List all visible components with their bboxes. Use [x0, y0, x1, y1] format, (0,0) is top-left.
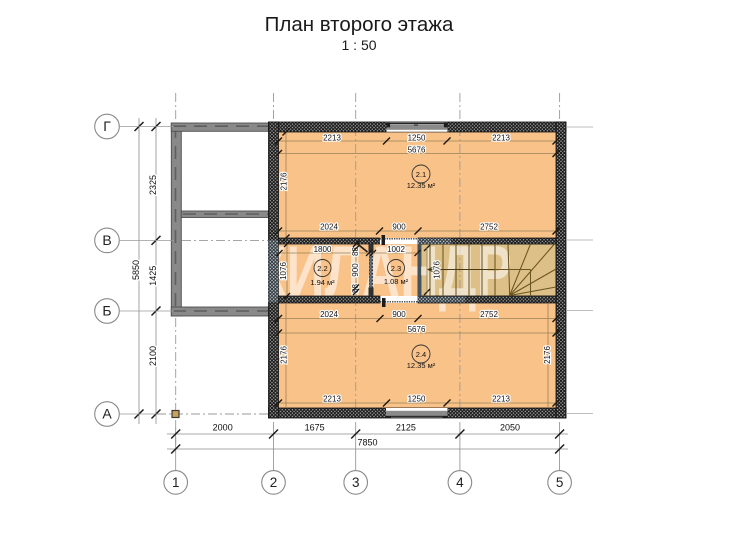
svg-text:5676: 5676	[408, 146, 426, 155]
svg-text:900: 900	[351, 263, 360, 277]
svg-text:4: 4	[456, 475, 464, 490]
svg-text:1002: 1002	[387, 245, 405, 254]
svg-text:88: 88	[351, 247, 360, 256]
svg-text:Г: Г	[103, 118, 111, 134]
svg-text:1425: 1425	[148, 266, 158, 286]
svg-text:2024: 2024	[320, 223, 338, 232]
svg-text:2752: 2752	[480, 310, 498, 319]
svg-text:2176: 2176	[280, 172, 289, 190]
svg-text:900: 900	[392, 310, 406, 319]
svg-text:1.08 м²: 1.08 м²	[384, 277, 409, 286]
svg-text:2.1: 2.1	[416, 170, 426, 179]
svg-text:2752: 2752	[480, 223, 498, 232]
svg-text:12.35 м²: 12.35 м²	[407, 181, 436, 190]
svg-text:2.4: 2.4	[416, 350, 426, 359]
svg-text:5: 5	[556, 475, 564, 490]
svg-text:2213: 2213	[323, 395, 341, 404]
svg-text:1800: 1800	[314, 245, 332, 254]
svg-text:1076: 1076	[279, 262, 288, 280]
svg-text:2100: 2100	[148, 346, 158, 366]
svg-text:А: А	[102, 406, 112, 422]
svg-text:Б: Б	[102, 303, 111, 319]
svg-text:2213: 2213	[492, 134, 510, 143]
svg-text:1.94 м²: 1.94 м²	[310, 278, 335, 287]
svg-text:2213: 2213	[492, 395, 510, 404]
svg-text:2.2: 2.2	[317, 264, 327, 273]
svg-text:2050: 2050	[500, 423, 520, 433]
svg-text:12.35 м²: 12.35 м²	[407, 361, 436, 370]
svg-text:2000: 2000	[213, 423, 233, 433]
svg-text:2.3: 2.3	[391, 264, 401, 273]
svg-text:2213: 2213	[323, 134, 341, 143]
svg-text:В: В	[102, 232, 111, 248]
svg-text:1: 1	[172, 475, 180, 490]
svg-text:1675: 1675	[305, 423, 325, 433]
svg-text:7850: 7850	[357, 438, 377, 448]
svg-text:5850: 5850	[131, 260, 141, 280]
svg-text:1 : 50: 1 : 50	[341, 37, 376, 53]
svg-text:2: 2	[270, 475, 278, 490]
svg-text:2325: 2325	[148, 175, 158, 195]
svg-text:2024: 2024	[320, 310, 338, 319]
svg-text:1076: 1076	[433, 261, 442, 279]
svg-text:План второго этажа: План второго этажа	[265, 13, 454, 36]
svg-text:1250: 1250	[408, 134, 426, 143]
svg-text:2176: 2176	[543, 346, 552, 364]
svg-text:2176: 2176	[280, 346, 289, 364]
svg-text:3: 3	[352, 475, 360, 490]
svg-text:2125: 2125	[396, 423, 416, 433]
svg-text:1250: 1250	[408, 395, 426, 404]
svg-text:5676: 5676	[408, 325, 426, 334]
svg-text:900: 900	[392, 223, 406, 232]
